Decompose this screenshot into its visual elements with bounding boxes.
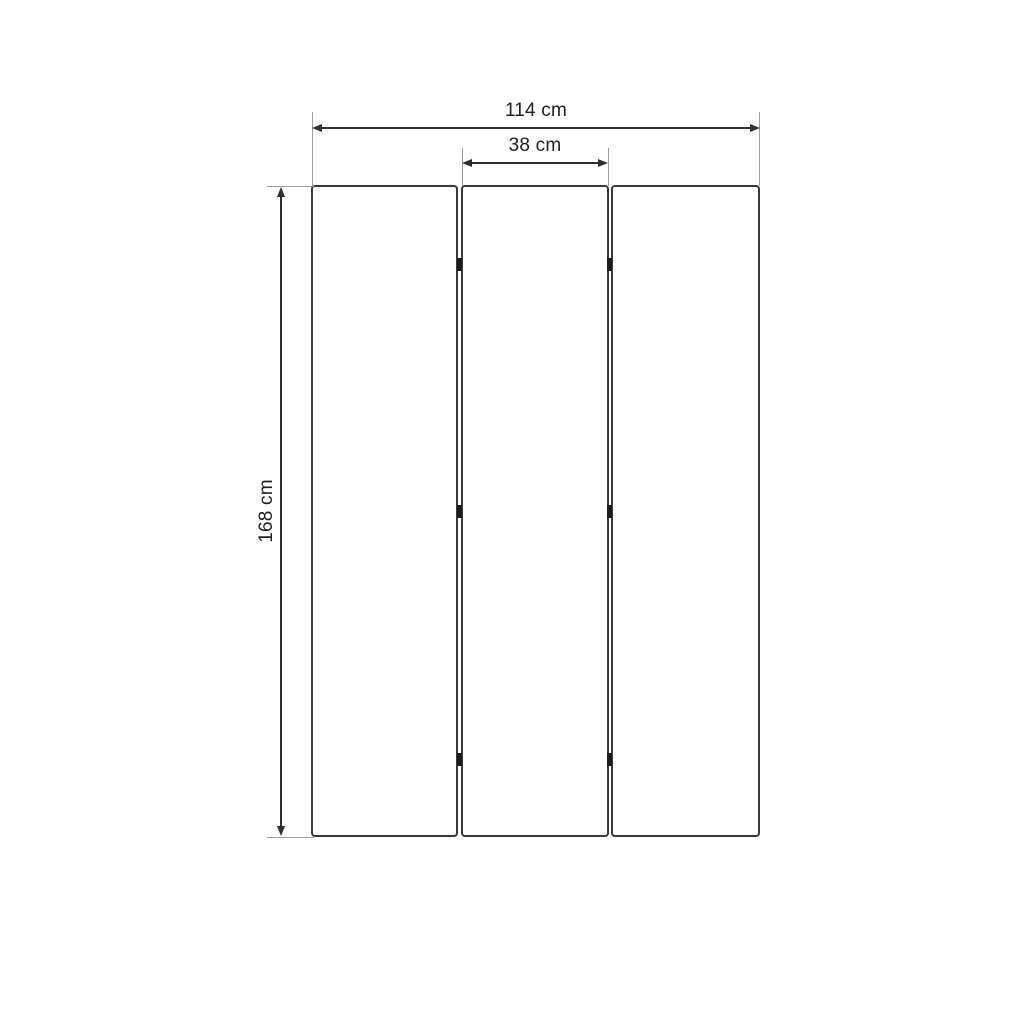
arrowhead-panel-width-left (462, 159, 472, 167)
panel-left (311, 185, 458, 837)
arrowhead-height-top (277, 187, 285, 197)
hinge-mark-left-bottom (457, 753, 462, 766)
panel-middle (461, 185, 609, 837)
extension-line-panel-right (608, 148, 609, 186)
arrowhead-panel-width-right (598, 159, 608, 167)
arrowhead-height-bottom (277, 826, 285, 836)
dimension-line-height (280, 195, 282, 828)
hinge-mark-left-middle (457, 505, 462, 518)
panel-right (611, 185, 760, 837)
arrowhead-total-width-left (312, 124, 322, 132)
dimension-label-height: 168 cm (256, 466, 278, 556)
hinge-mark-right-middle (607, 505, 612, 518)
arrowhead-total-width-right (750, 124, 760, 132)
dimension-line-panel-width (470, 162, 600, 164)
dimension-diagram: 114 cm 38 cm 168 cm (0, 0, 1024, 1024)
extension-line-height-bottom (267, 837, 314, 838)
dimension-label-panel-width: 38 cm (462, 135, 608, 157)
dimension-label-total-width: 114 cm (312, 100, 760, 122)
dimension-line-total-width (320, 127, 752, 129)
hinge-mark-right-top (607, 258, 612, 271)
hinge-mark-left-top (457, 258, 462, 271)
hinge-mark-right-bottom (607, 753, 612, 766)
extension-line-height-top (267, 186, 314, 187)
